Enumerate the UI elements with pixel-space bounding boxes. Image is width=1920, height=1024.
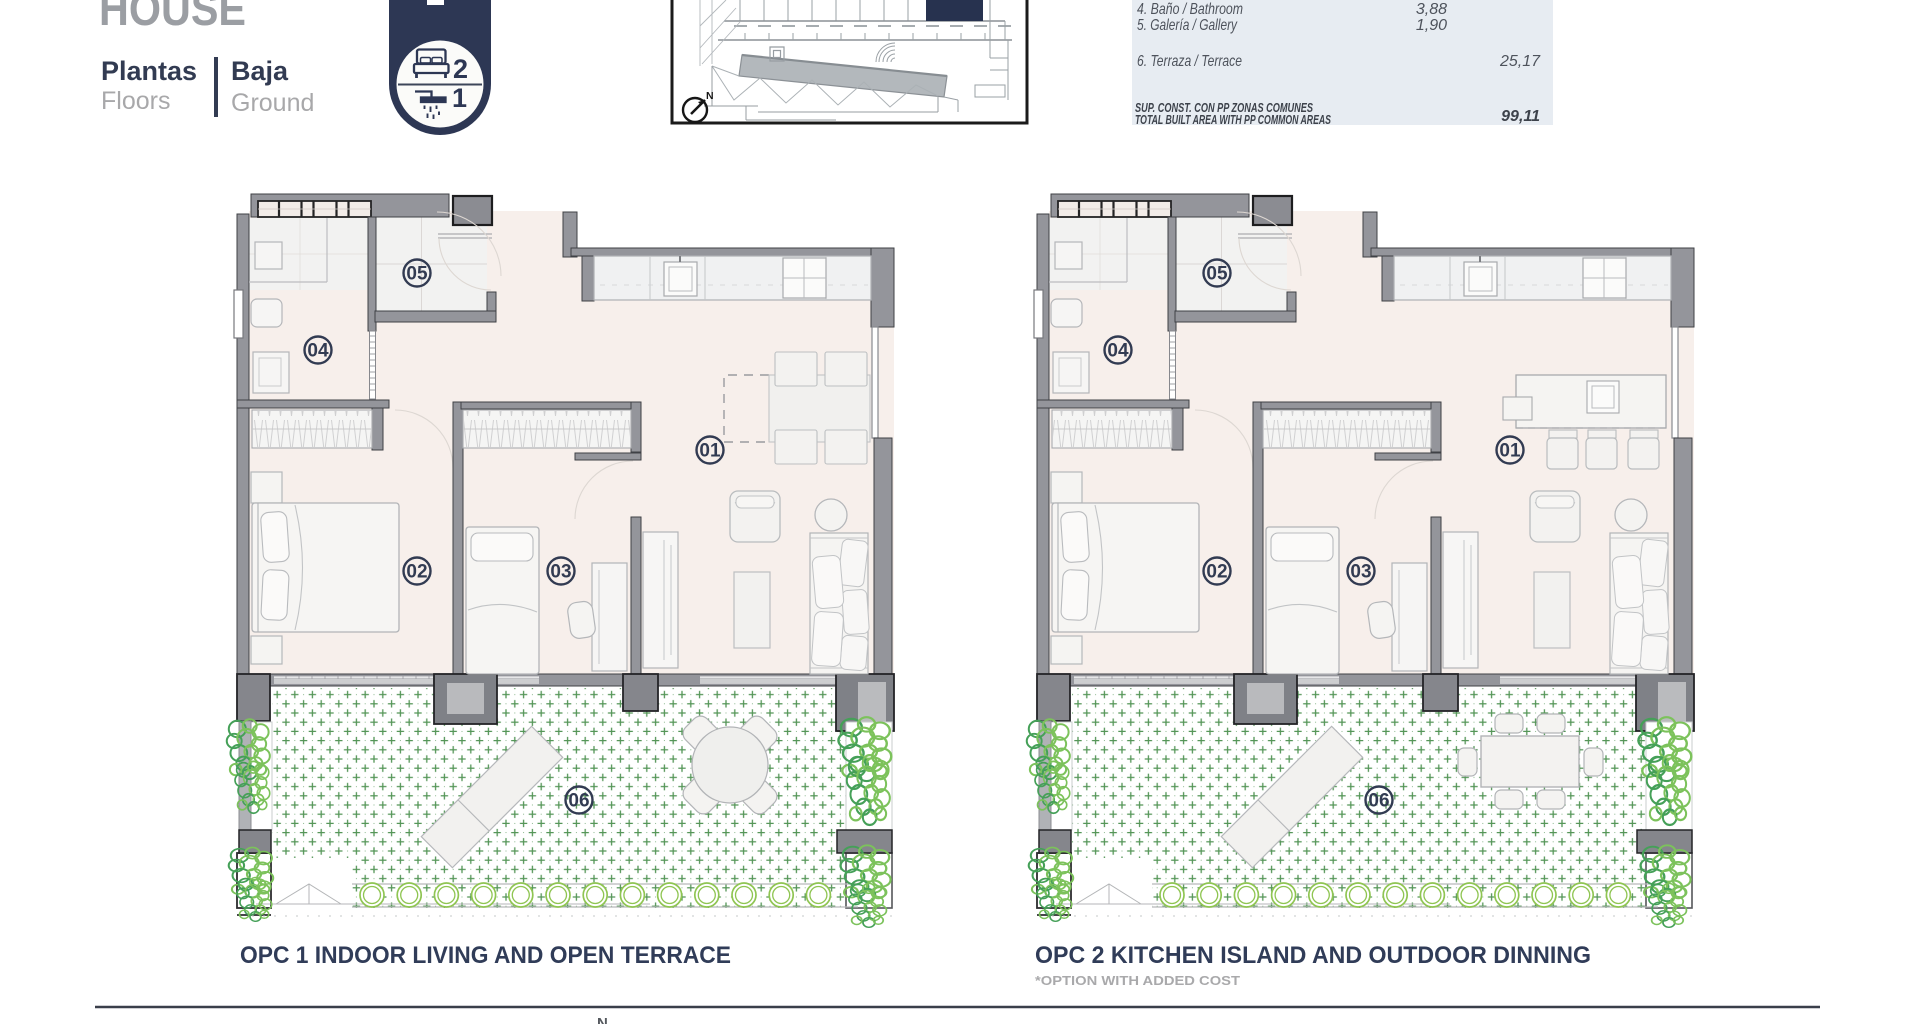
svg-text:Plantas: Plantas xyxy=(101,56,197,86)
svg-text:99,11: 99,11 xyxy=(1501,108,1540,125)
svg-text:Baja: Baja xyxy=(231,56,289,86)
svg-text:3,88: 3,88 xyxy=(1416,1,1447,18)
svg-text:Floors: Floors xyxy=(101,87,170,115)
svg-text:*OPTION WITH ADDED COST: *OPTION WITH ADDED COST xyxy=(1035,973,1240,988)
svg-text:1: 1 xyxy=(452,83,467,113)
svg-text:HOUSE: HOUSE xyxy=(99,0,246,35)
svg-text:03: 03 xyxy=(550,562,571,583)
svg-text:02: 02 xyxy=(1206,562,1227,583)
svg-text:1,90: 1,90 xyxy=(1416,17,1447,34)
svg-text:OPC 1 INDOOR LIVING AND OPEN T: OPC 1 INDOOR LIVING AND OPEN TERRACE xyxy=(240,942,731,969)
svg-text:N: N xyxy=(597,1015,608,1024)
svg-text:06: 06 xyxy=(1368,791,1389,812)
svg-text:N: N xyxy=(706,90,714,102)
svg-text:OPC 2 KITCHEN ISLAND AND OUTDO: OPC 2 KITCHEN ISLAND AND OUTDOOR DINNING xyxy=(1035,942,1591,969)
svg-text:25,17: 25,17 xyxy=(1499,53,1541,70)
svg-text:04: 04 xyxy=(1107,341,1129,362)
svg-text:Ground: Ground xyxy=(231,89,314,117)
svg-text:05: 05 xyxy=(1206,264,1228,285)
svg-text:6. Terraza / Terrace: 6. Terraza / Terrace xyxy=(1137,53,1242,70)
svg-text:TOTAL BUILT AREA WITH PP COMMO: TOTAL BUILT AREA WITH PP COMMON AREAS xyxy=(1135,113,1331,127)
svg-text:2: 2 xyxy=(453,54,468,84)
svg-text:06: 06 xyxy=(568,791,589,812)
svg-text:5. Galería / Gallery: 5. Galería / Gallery xyxy=(1137,17,1238,34)
svg-text:01: 01 xyxy=(699,441,721,462)
svg-text:4. Baño / Bathroom: 4. Baño / Bathroom xyxy=(1137,1,1243,18)
svg-text:04: 04 xyxy=(307,341,329,362)
svg-text:05: 05 xyxy=(406,264,428,285)
svg-text:03: 03 xyxy=(1350,562,1371,583)
svg-text:02: 02 xyxy=(406,562,427,583)
svg-text:01: 01 xyxy=(1499,441,1521,462)
